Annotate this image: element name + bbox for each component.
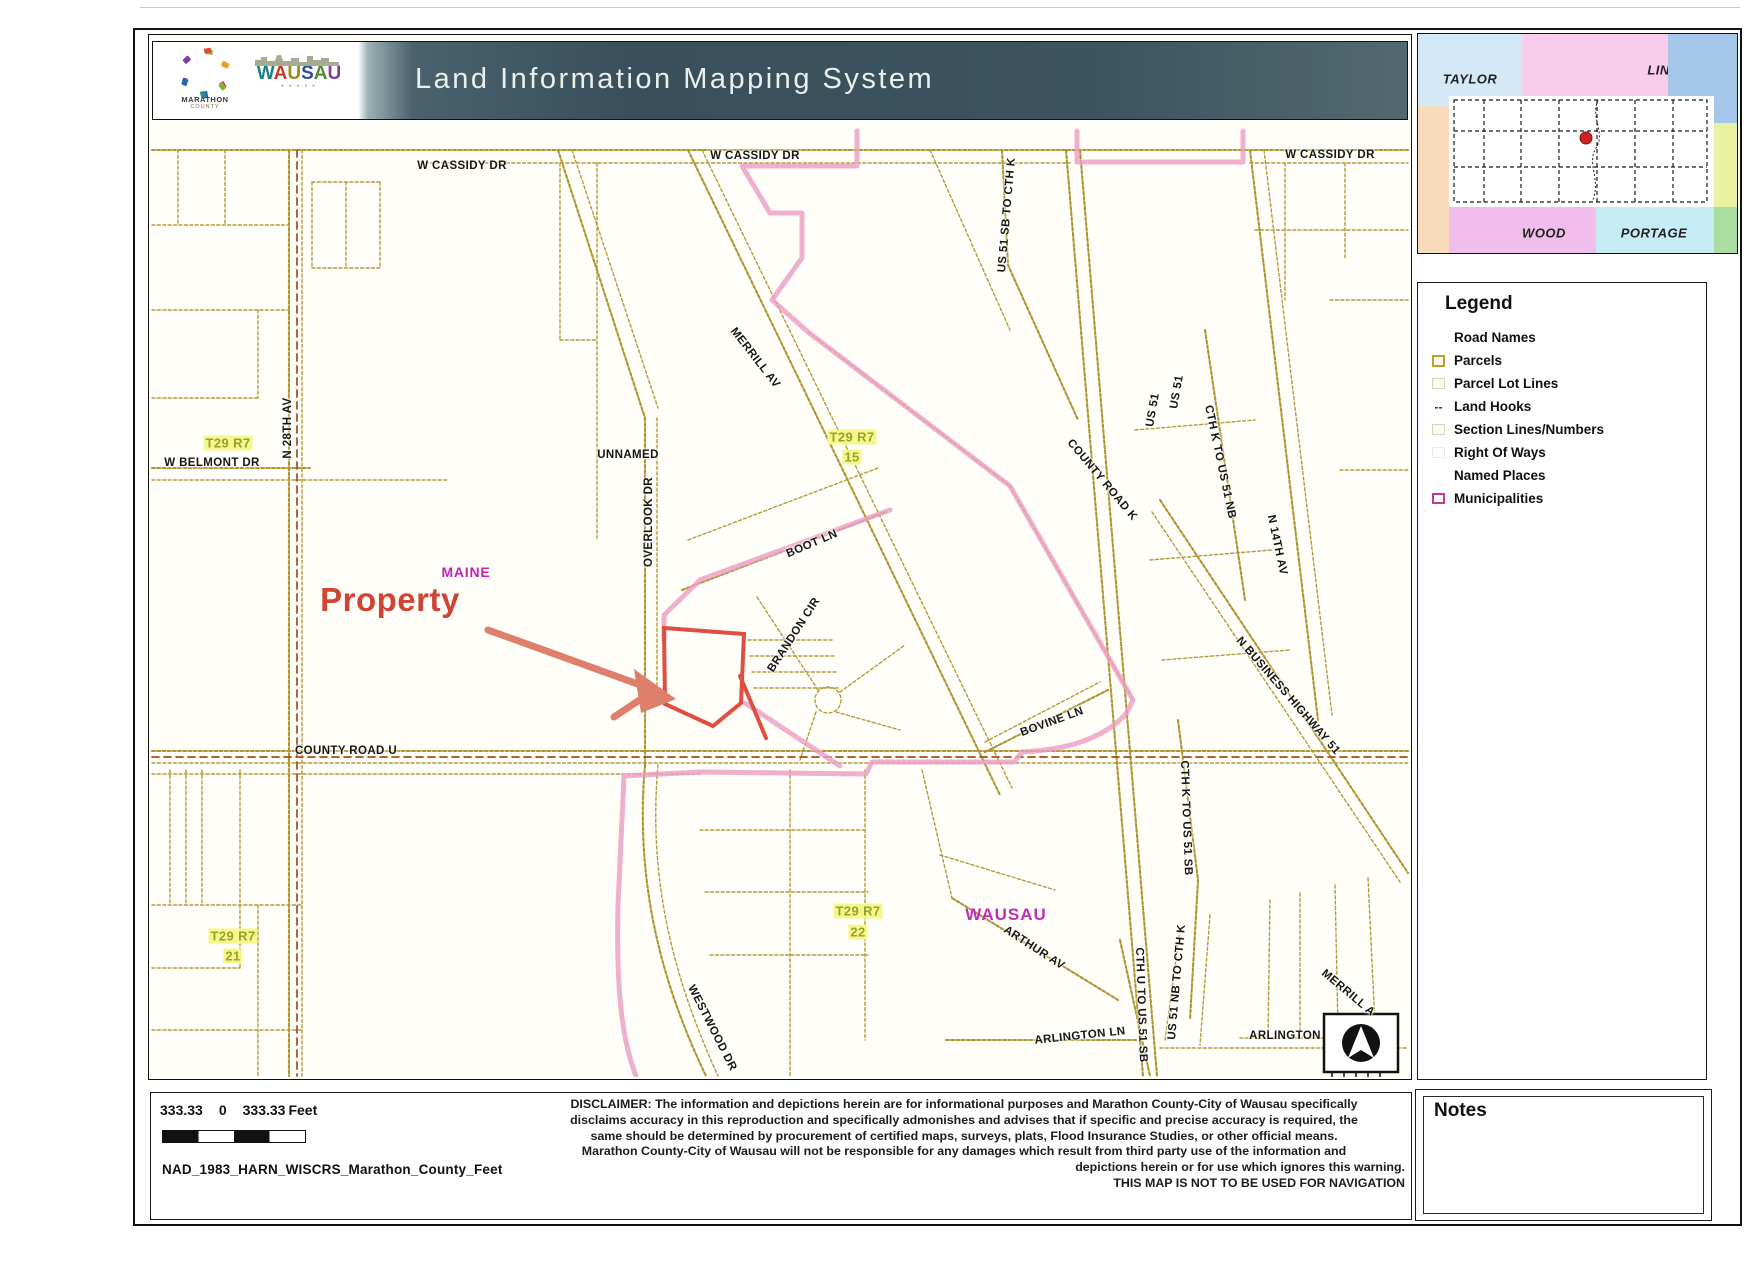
map-label: COUNTY ROAD U: [295, 745, 397, 757]
map-label: 21: [223, 949, 242, 964]
map-label: OVERLOOK DR: [643, 477, 655, 567]
map-label: T29 R7: [203, 436, 252, 451]
map-label: 15: [842, 450, 861, 465]
map-label: T29 R7: [833, 904, 882, 919]
map-label: W CASSIDY DR: [417, 160, 507, 172]
map-label: ARLINGTON: [1249, 1030, 1321, 1042]
map-label: T29 R7: [208, 929, 257, 944]
property-highlight-layer: [488, 628, 766, 738]
map-label: W BELMONT DR: [164, 457, 260, 469]
property-callout-label: Property: [320, 581, 460, 619]
map-label: N 28TH AV: [282, 397, 294, 458]
map-label: W CASSIDY DR: [1285, 149, 1375, 161]
map-label: WAUSAU: [965, 905, 1047, 925]
map-label: T29 R7: [827, 430, 876, 445]
municipal-boundary-layer: [618, 131, 1243, 1076]
map-label: W CASSIDY DR: [710, 150, 800, 162]
map-label: MAINE: [441, 564, 490, 580]
inset-location-dot: [1580, 132, 1592, 144]
map-linework: [0, 0, 1744, 1264]
inset-township-grid: [1454, 100, 1707, 202]
map-label: UNNAMED: [597, 449, 659, 461]
map-label: 22: [848, 925, 867, 940]
north-arrow-icon: [1324, 1014, 1398, 1078]
inset-river: [1592, 100, 1599, 202]
